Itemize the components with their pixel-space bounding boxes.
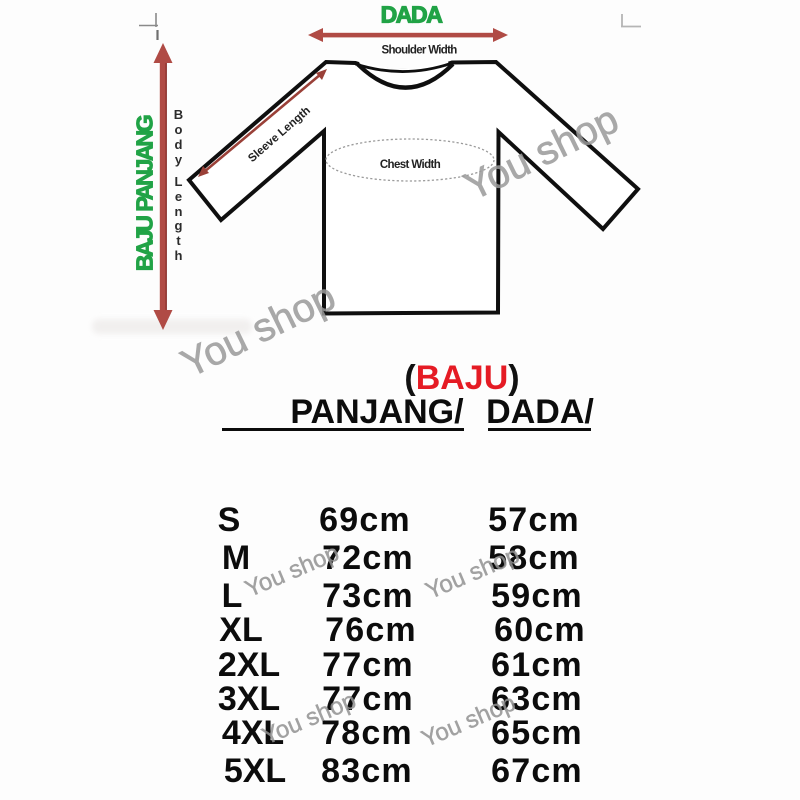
svg-text:Chest Width: Chest Width [380, 159, 441, 171]
svg-text:BAJU PANJANG: BAJU PANJANG [132, 115, 158, 271]
svg-text:2XL: 2XL [218, 646, 280, 684]
svg-text:g: g [175, 218, 183, 233]
svg-text:L: L [222, 577, 243, 615]
svg-text:DADA/: DADA/ [486, 393, 594, 431]
svg-text:83cm: 83cm [321, 752, 413, 790]
svg-text:M: M [222, 539, 250, 577]
svg-text:61cm: 61cm [491, 646, 583, 684]
svg-text:73cm: 73cm [322, 577, 414, 615]
svg-text:h: h [175, 248, 183, 263]
svg-text:Shoulder Width: Shoulder Width [381, 45, 457, 57]
svg-text:69cm: 69cm [319, 501, 411, 539]
svg-text:5XL: 5XL [224, 752, 286, 790]
svg-text:3XL: 3XL [218, 680, 280, 718]
svg-text:n: n [175, 204, 183, 219]
svg-text:77cm: 77cm [322, 646, 414, 684]
svg-text:t: t [176, 233, 181, 248]
svg-text:PANJANG/: PANJANG/ [290, 393, 464, 431]
svg-text:DADA: DADA [381, 2, 443, 28]
svg-text:67cm: 67cm [491, 752, 583, 790]
svg-text:60cm: 60cm [494, 611, 586, 649]
svg-text:y: y [175, 152, 183, 167]
svg-text:76cm: 76cm [325, 611, 417, 649]
svg-text:d: d [175, 137, 183, 152]
svg-text:o: o [175, 122, 183, 137]
svg-text:L: L [175, 174, 183, 189]
svg-text:e: e [175, 189, 182, 204]
svg-text:S: S [218, 501, 241, 539]
svg-text:(BAJU): (BAJU) [404, 359, 519, 397]
svg-text:59cm: 59cm [491, 577, 583, 615]
svg-text:57cm: 57cm [488, 501, 580, 539]
svg-text:B: B [174, 107, 183, 122]
svg-text:XL: XL [219, 611, 262, 649]
